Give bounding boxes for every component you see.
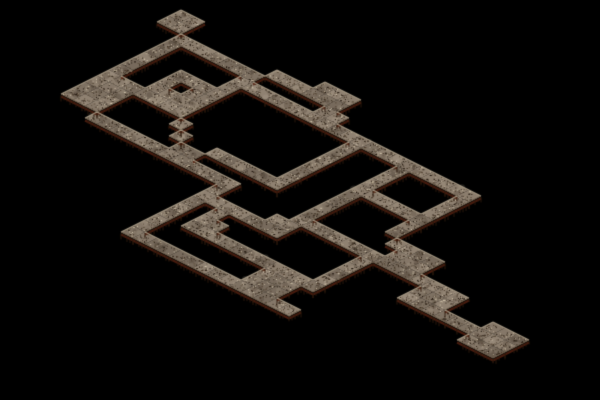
dungeon-map[interactable] xyxy=(0,0,600,400)
dungeon-map-canvas[interactable] xyxy=(0,0,600,400)
